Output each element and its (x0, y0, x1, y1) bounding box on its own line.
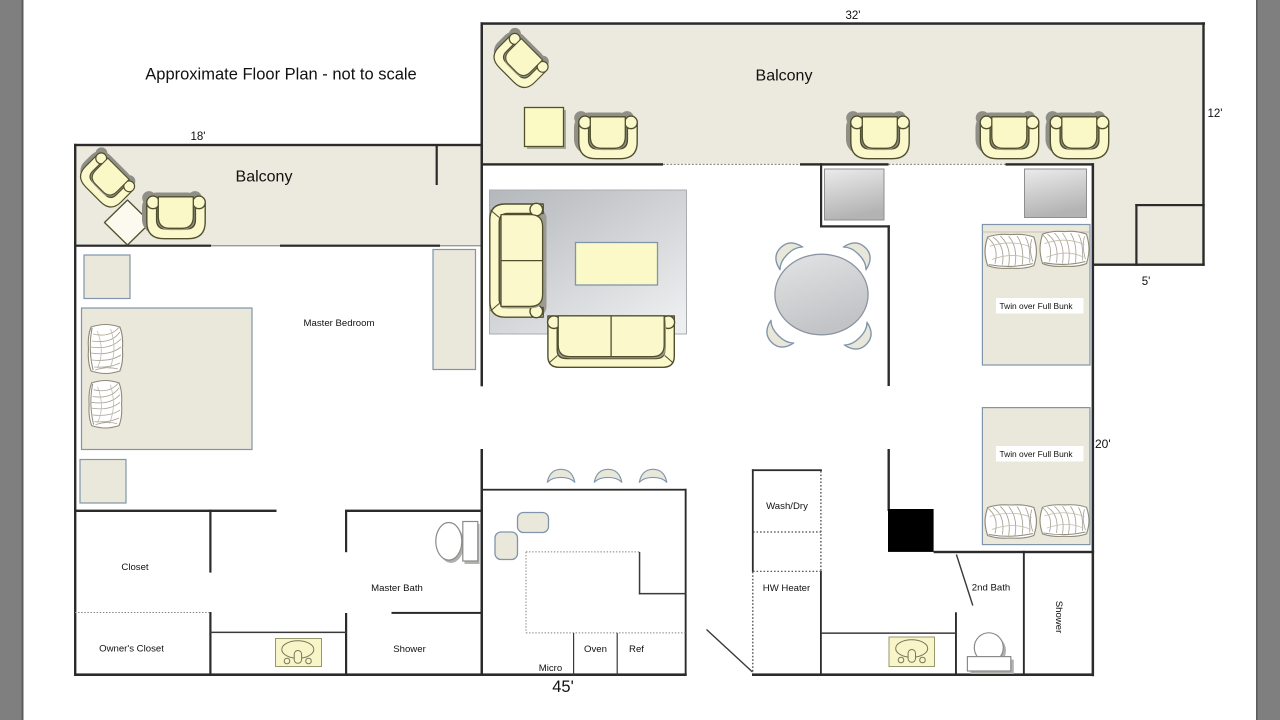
svg-text:12': 12' (1208, 108, 1223, 120)
svg-text:Wash/Dry: Wash/Dry (766, 501, 808, 512)
svg-text:Twin over Full Bunk: Twin over Full Bunk (1000, 301, 1074, 311)
svg-text:HW Heater: HW Heater (763, 583, 811, 594)
svg-text:Balcony: Balcony (236, 169, 293, 186)
svg-text:32': 32' (846, 10, 861, 22)
svg-text:Twin over Full Bunk: Twin over Full Bunk (1000, 449, 1074, 459)
svg-text:Micro: Micro (539, 663, 562, 674)
svg-text:20': 20' (1095, 437, 1111, 451)
svg-text:Master Bath: Master Bath (371, 583, 423, 594)
svg-text:18': 18' (191, 131, 206, 143)
svg-text:Shower: Shower (1053, 601, 1064, 634)
svg-text:Approximate Floor Plan - not t: Approximate Floor Plan - not to scale (145, 66, 416, 84)
svg-text:2nd Bath: 2nd Bath (972, 583, 1010, 594)
svg-text:Balcony: Balcony (756, 68, 813, 85)
svg-text:Owner's Closet: Owner's Closet (99, 644, 164, 655)
svg-text:Closet: Closet (121, 562, 149, 573)
svg-text:Oven: Oven (584, 644, 607, 655)
svg-text:Ref: Ref (629, 644, 644, 655)
svg-text:45': 45' (552, 678, 574, 696)
svg-text:Shower: Shower (393, 644, 426, 655)
svg-text:Master Bedroom: Master Bedroom (304, 318, 375, 329)
svg-text:5': 5' (1142, 276, 1151, 288)
